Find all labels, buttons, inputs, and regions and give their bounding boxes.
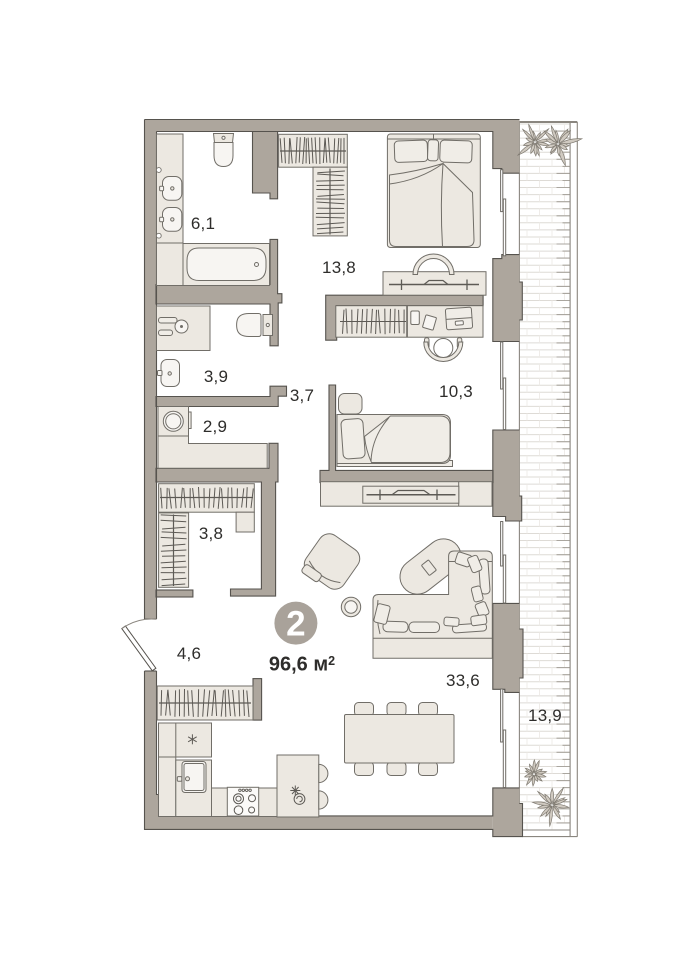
svg-text:6,1: 6,1 — [191, 214, 215, 233]
svg-text:2,9: 2,9 — [203, 417, 227, 436]
svg-text:2: 2 — [286, 605, 305, 644]
svg-text:3,9: 3,9 — [204, 367, 228, 386]
svg-text:3,7: 3,7 — [290, 386, 314, 405]
svg-text:96,6 м2: 96,6 м2 — [269, 654, 335, 676]
svg-text:10,3: 10,3 — [439, 382, 473, 401]
svg-text:13,8: 13,8 — [322, 258, 356, 277]
svg-text:33,6: 33,6 — [446, 671, 480, 690]
svg-text:13,9: 13,9 — [528, 706, 562, 725]
svg-text:3,8: 3,8 — [199, 524, 223, 543]
svg-text:4,6: 4,6 — [177, 644, 201, 663]
